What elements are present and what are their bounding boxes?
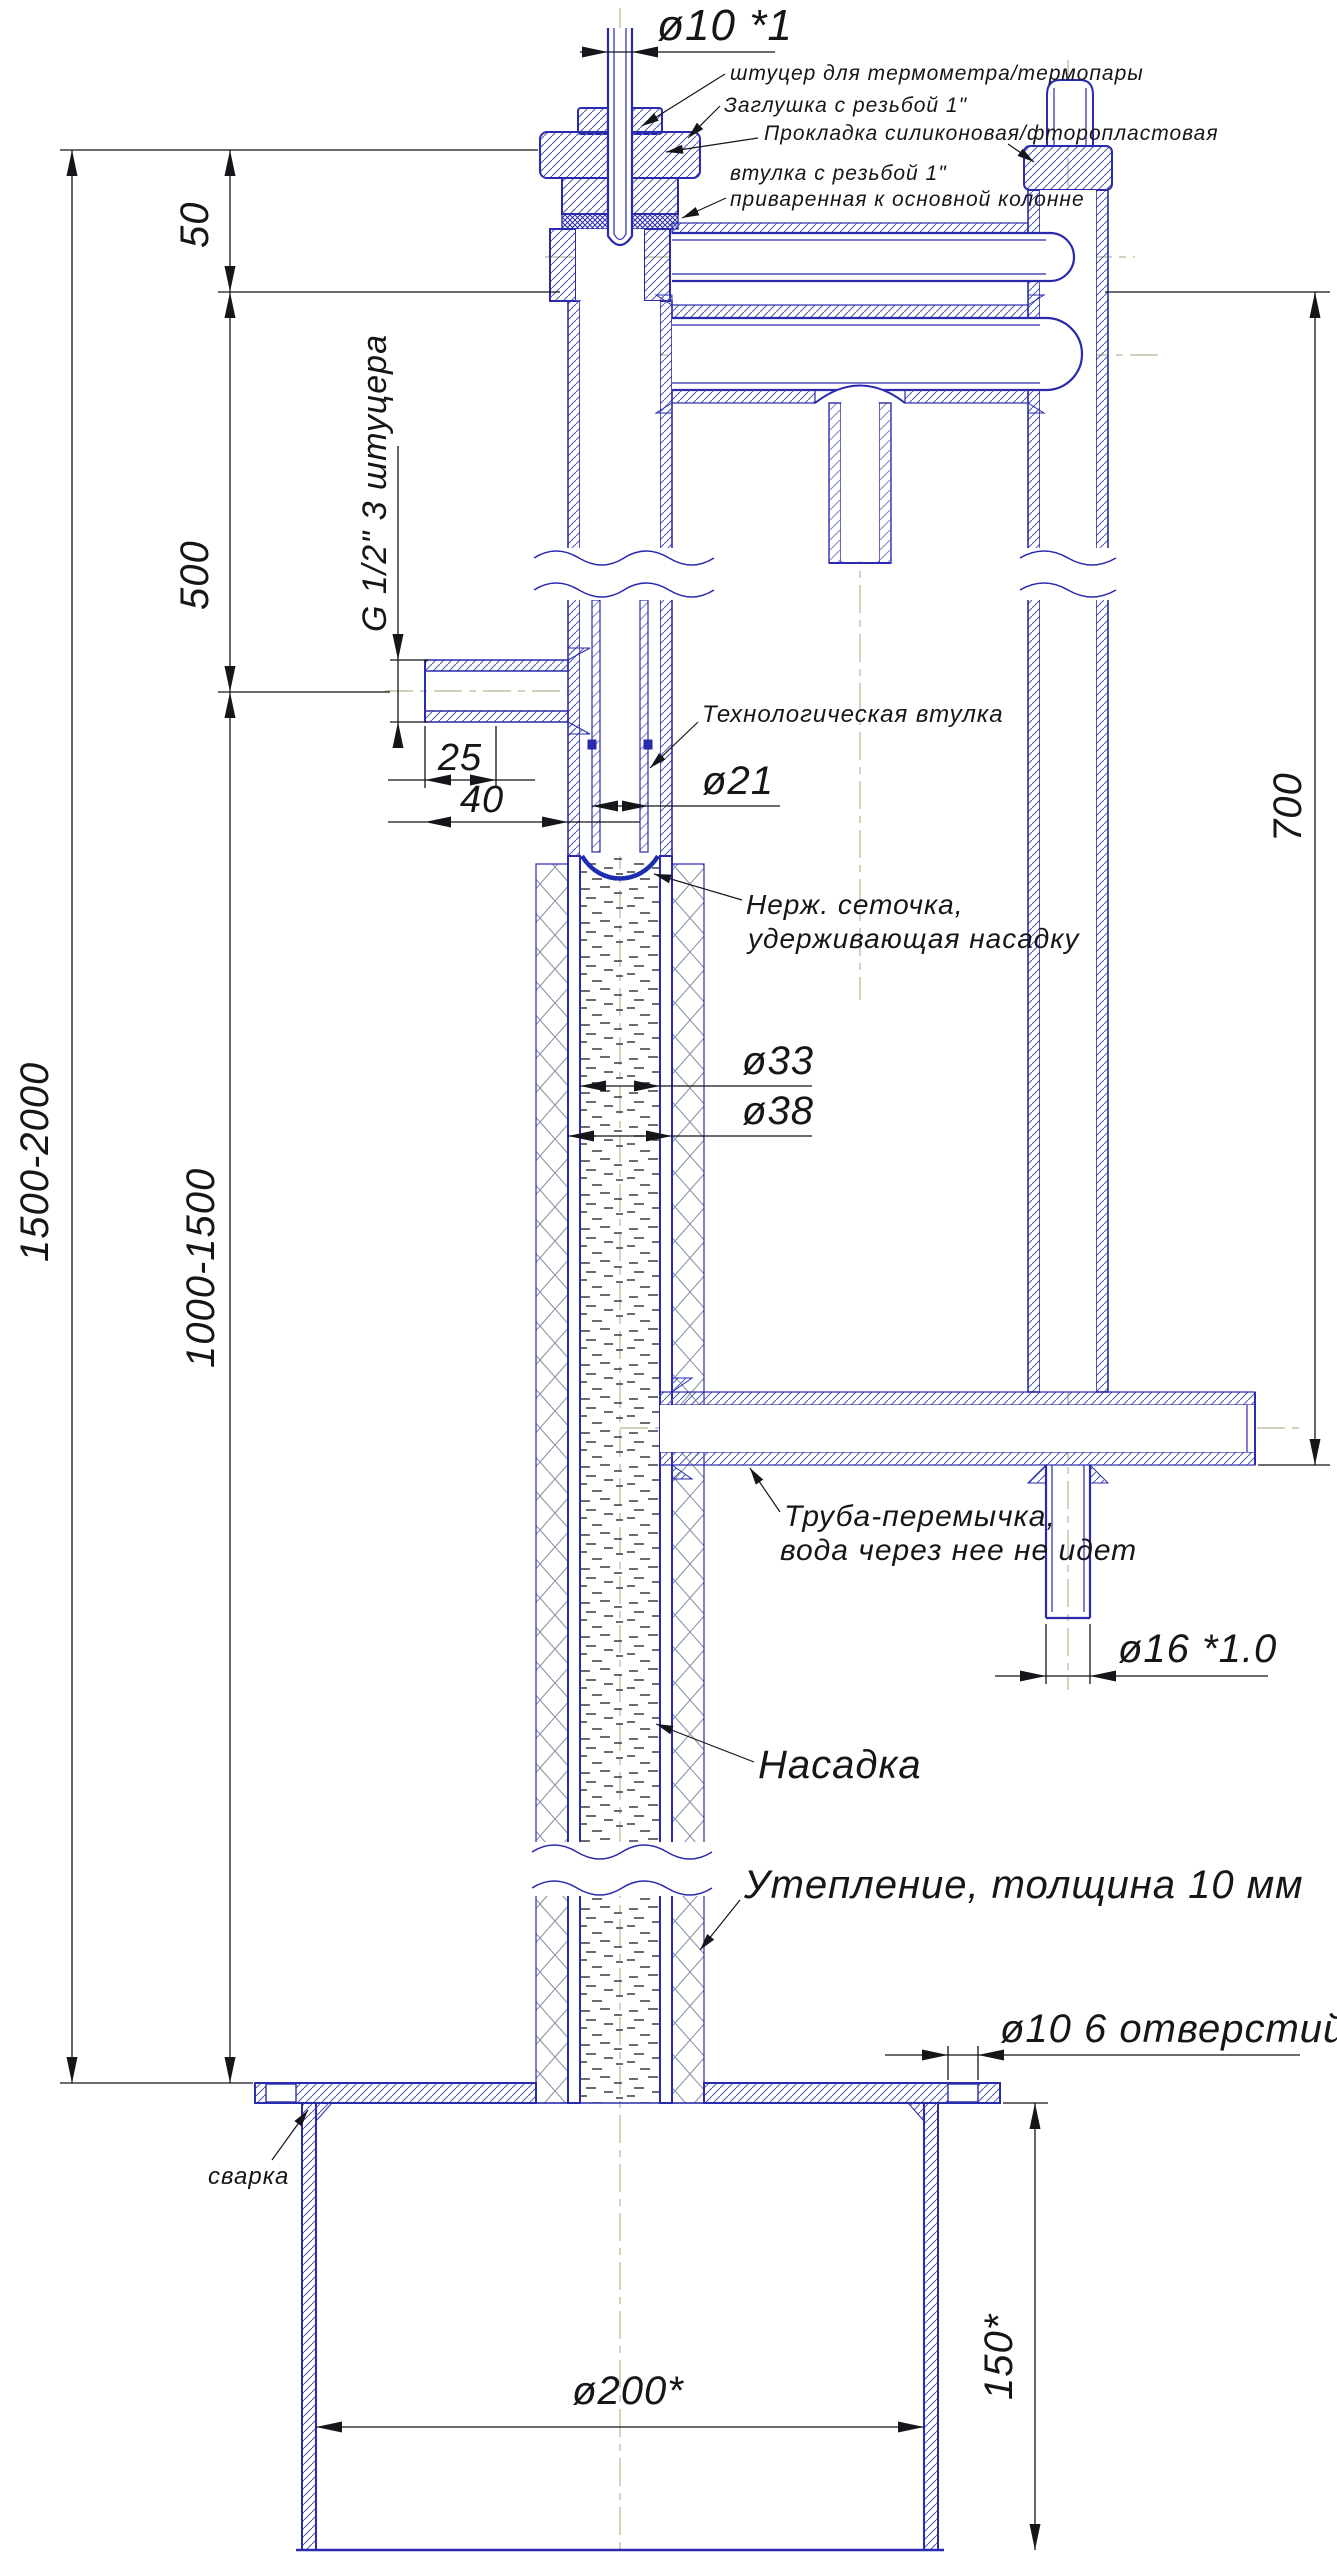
callout-tech-sleeve: Технологическая втулка <box>702 701 1004 728</box>
jumper-tube <box>660 1378 1255 1483</box>
callout-mesh-line1: Нерж. сеточка, <box>746 889 964 920</box>
packed-wall-right <box>660 856 672 2103</box>
water-outlet-bore <box>841 403 879 561</box>
packing-fill <box>580 856 660 2103</box>
callout-sleeve-line1: втулка с резьбой 1" <box>730 162 947 185</box>
shell-top-strip <box>672 223 1028 233</box>
tank-wall-right <box>924 2103 938 2550</box>
dim-upper-section: 500 <box>173 540 217 610</box>
jacket-bottom-wall-left <box>672 390 815 403</box>
dim-tank-diameter: ø200* <box>572 2369 684 2413</box>
break-mask-right <box>1022 548 1114 600</box>
right-column-wall-right <box>1096 190 1108 1392</box>
callout-jumper-line2: вода через нее не идет <box>780 1534 1137 1567</box>
column-drawing: ø10 *1 50 500 1500-2000 1000-1500 700 G … <box>0 0 1337 2560</box>
tech-sleeve-right <box>640 600 648 852</box>
jacket-top-wall <box>672 305 1028 318</box>
callout-gasket: Прокладка силиконовая/фторопластовая <box>764 122 1219 145</box>
flange-left <box>255 2083 536 2103</box>
callout-weld: сварка <box>208 2163 289 2190</box>
water-outlet-wall-right <box>879 403 891 563</box>
dim-overall-height: 1500-2000 <box>13 1062 57 1262</box>
drawing-sheet: ø10 *1 50 500 1500-2000 1000-1500 700 G … <box>0 0 1337 2560</box>
packed-wall-left <box>568 856 580 2103</box>
threaded-sleeve-right-wall <box>644 229 670 301</box>
bolt-hole-left <box>266 2084 296 2102</box>
dim-nozzle-length: 40 <box>460 779 504 821</box>
dim-packing-bore: ø33 <box>742 1039 814 1083</box>
nozzle-bottom-wall <box>425 711 568 722</box>
right-plug-flange <box>1024 146 1112 190</box>
dim-return-tube: ø16 *1.0 <box>1118 1627 1277 1671</box>
sleeve-stop-left <box>588 740 596 749</box>
callout-plug: Заглушка с резьбой 1" <box>724 94 968 117</box>
threaded-sleeve-left-wall <box>550 229 576 301</box>
tank-wall-left <box>302 2103 316 2550</box>
water-outlet-wall-left <box>829 403 841 563</box>
dim-nozzle-inset: 25 <box>437 737 482 779</box>
dim-top-offset: 50 <box>173 202 217 249</box>
callout-thermo-port: штуцер для термометра/термопары <box>730 62 1144 85</box>
lower-tube-outline <box>672 318 1082 390</box>
thermo-tube-outer <box>608 28 632 245</box>
nozzle-top-wall <box>425 660 568 671</box>
thermometer-tube <box>608 28 632 245</box>
dim-right-drop: 700 <box>1266 772 1310 842</box>
dim-tech-sleeve-bore: ø21 <box>702 759 774 803</box>
dim-nozzle-note: G 1/2" 3 штуцера <box>356 334 394 632</box>
tech-sleeve-left <box>592 600 600 852</box>
jumper-top-wall <box>660 1392 1255 1405</box>
insulation-right <box>672 864 704 2103</box>
sleeve-stop-right <box>644 740 652 749</box>
jacket-bottom-wall-right <box>905 390 1028 403</box>
dephlegmator-assembly <box>656 223 1082 563</box>
callout-jumper-line1: Труба-перемычка, <box>784 1500 1056 1533</box>
dim-packed-height: 1000-1500 <box>179 1168 223 1368</box>
bolt-hole-right <box>948 2084 978 2102</box>
callout-sleeve-line2: приваренная к основной колонне <box>730 188 1085 211</box>
break-mask-main-upper <box>532 548 714 600</box>
jumper-bore <box>660 1405 1255 1452</box>
insulation-left <box>536 864 568 2103</box>
dim-flange-holes: ø10 6 отверстий <box>1000 2007 1337 2051</box>
callout-mesh-line2: удерживающая насадку <box>746 923 1080 954</box>
dim-holes-lines <box>885 2046 1300 2080</box>
dim-g12-lines <box>390 446 428 730</box>
jacket-welds-top <box>656 295 1044 305</box>
dim-tank-neck-height: 150* <box>977 2313 1021 2400</box>
dim-thermo-tube: ø10 *1 <box>657 1 793 50</box>
jumper-bottom-wall <box>660 1452 1255 1465</box>
dim-column-od: ø38 <box>742 1089 814 1133</box>
callout-packing: Насадка <box>758 1743 922 1787</box>
callout-insulation: Утепление, толщина 10 мм <box>743 1863 1304 1907</box>
